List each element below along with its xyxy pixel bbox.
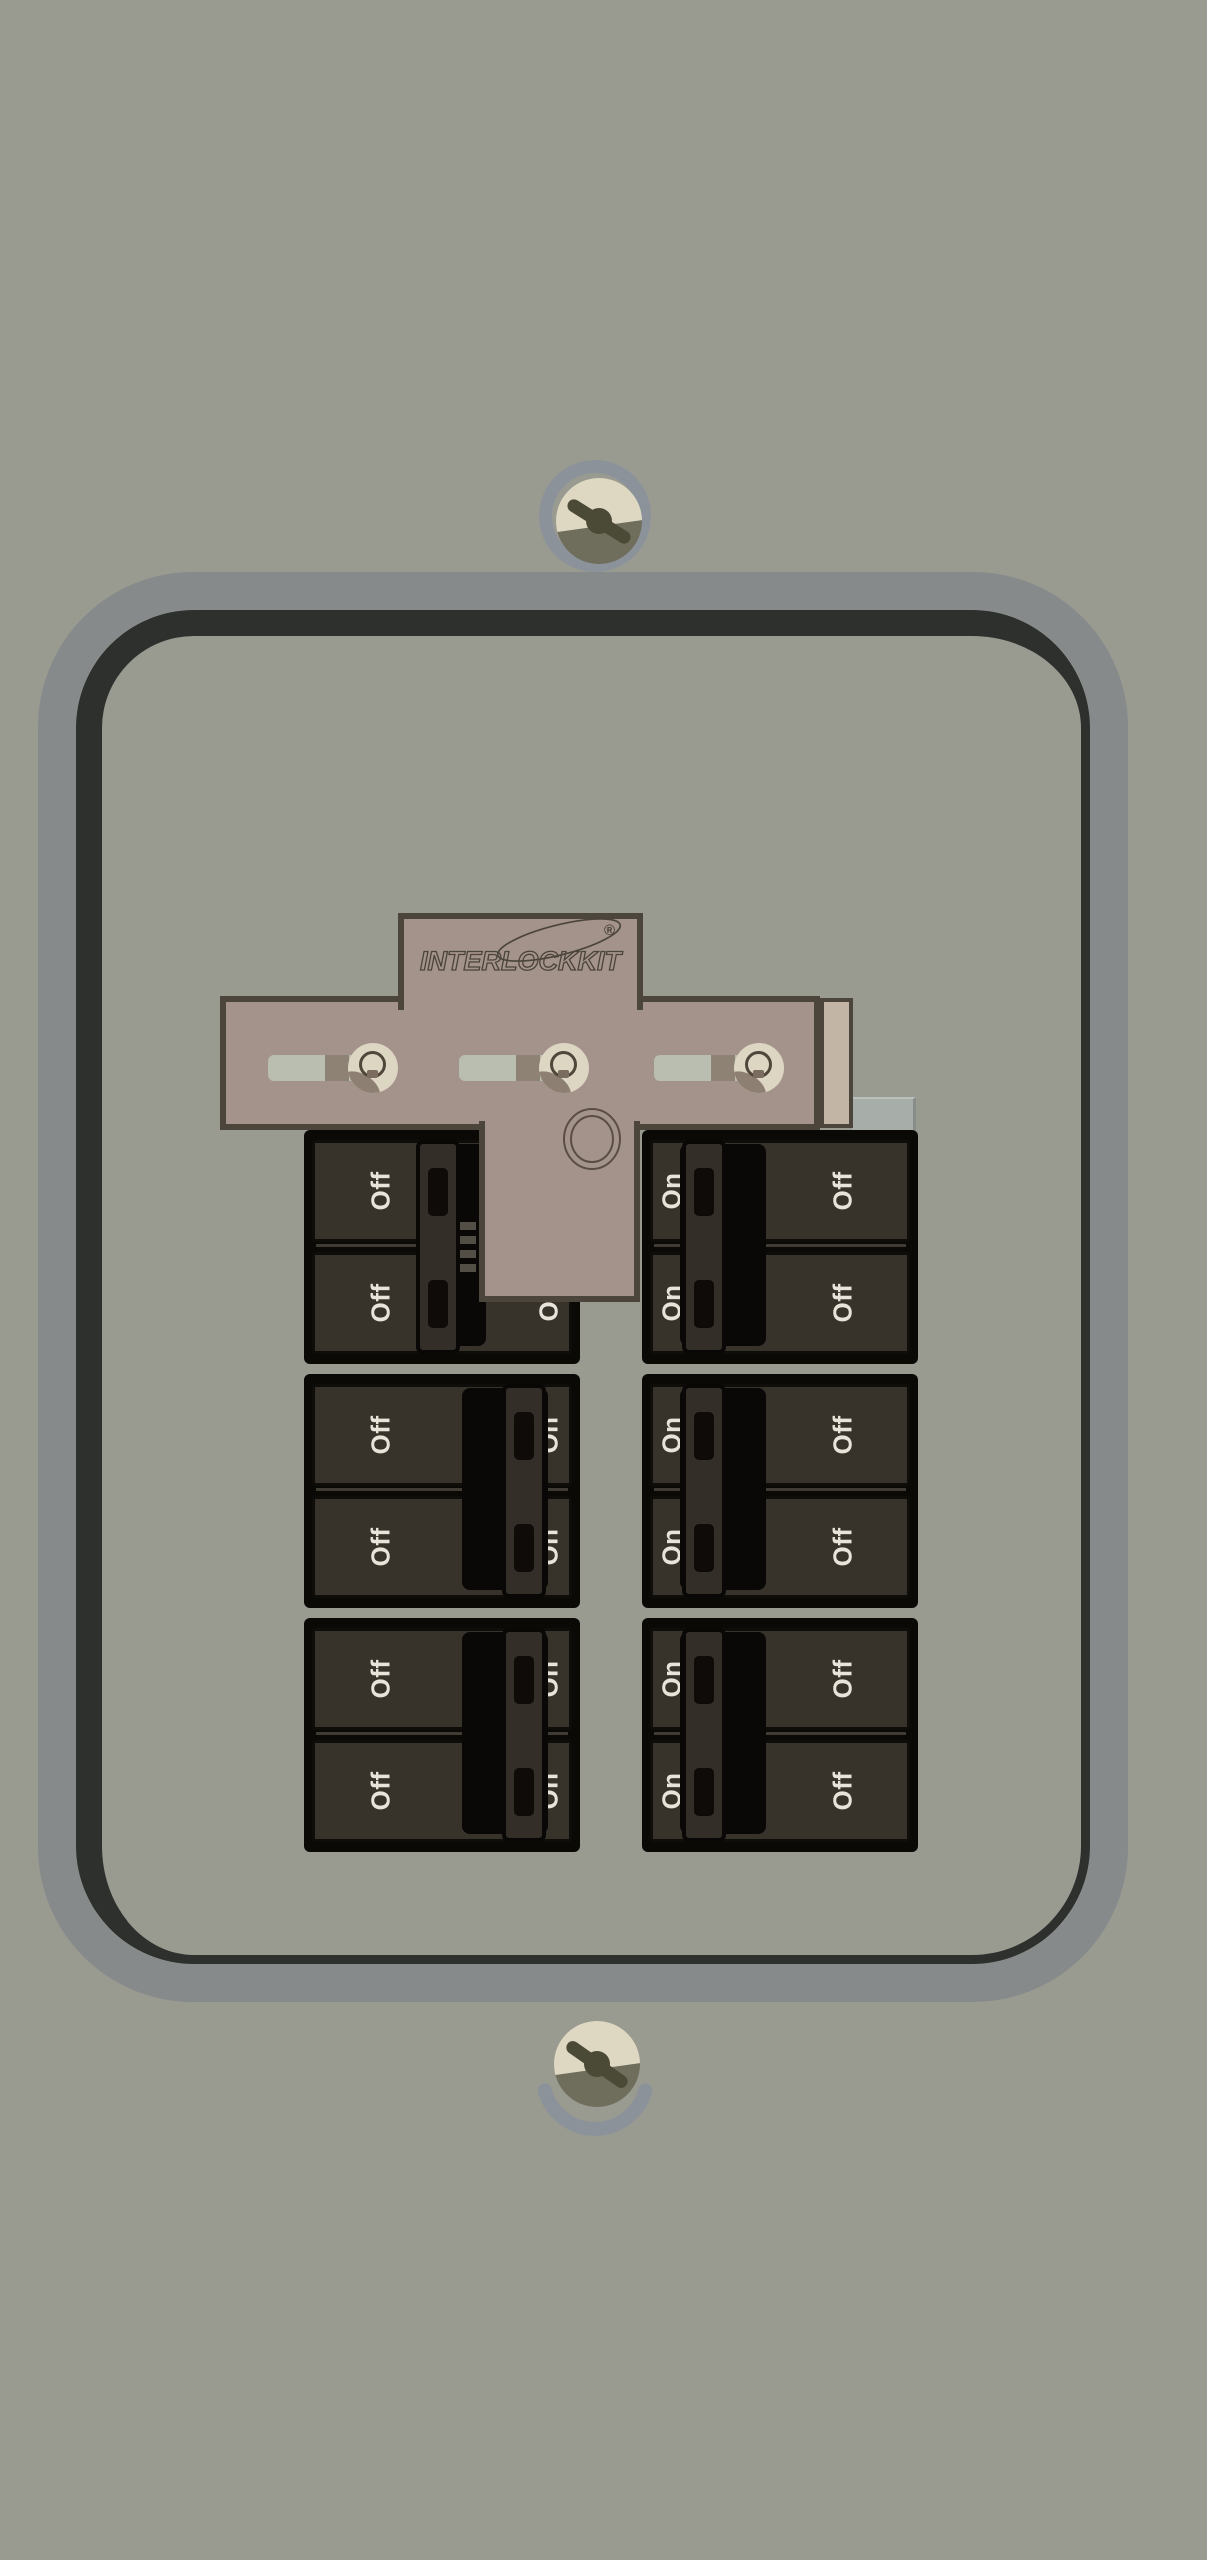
- breaker-off-label: Off: [366, 1527, 397, 1566]
- breaker-off-label: Off: [828, 1283, 859, 1322]
- screw-hub-icon: [584, 2051, 610, 2077]
- knob-notch: [558, 1070, 569, 1078]
- breaker-pair-left-2: Off On Off On: [304, 1374, 580, 1608]
- breaker-off-label: Off: [366, 1659, 397, 1698]
- breaker-handle-tie[interactable]: [502, 1628, 546, 1842]
- plate-oval-hole-icon: [554, 1100, 632, 1180]
- slider-shadow: [516, 1055, 540, 1081]
- breaker-off-label: Off: [828, 1415, 859, 1454]
- vent-stripe: [458, 1222, 476, 1230]
- breaker-off-label: Off: [366, 1171, 397, 1210]
- handle-grip: [514, 1524, 534, 1572]
- breaker-panel: Off On Off On Off On Off On Off On: [0, 0, 1207, 2560]
- vent-stripe: [458, 1236, 476, 1244]
- breaker-off-label: Off: [366, 1283, 397, 1322]
- breaker-handle-tie[interactable]: [682, 1628, 726, 1842]
- screw-head-icon: [556, 478, 642, 564]
- breaker-off-label: Off: [828, 1771, 859, 1810]
- top-screw[interactable]: [539, 460, 655, 576]
- interlock-plate-side-strip: [820, 998, 853, 1128]
- slider-shadow: [325, 1055, 349, 1081]
- handle-grip: [694, 1280, 714, 1328]
- breaker-off-label: Off: [366, 1771, 397, 1810]
- knob-notch: [753, 1070, 764, 1078]
- screw-head-icon: [554, 2021, 640, 2107]
- handle-grip: [694, 1524, 714, 1572]
- breaker-pair-right-3: On Off On Off: [642, 1618, 918, 1852]
- handle-grip: [694, 1768, 714, 1816]
- breaker-handle-tie[interactable]: [502, 1384, 546, 1598]
- breaker-off-label: Off: [828, 1171, 859, 1210]
- handle-grip: [428, 1280, 448, 1328]
- handle-grip: [428, 1168, 448, 1216]
- handle-grip: [514, 1412, 534, 1460]
- breaker-pair-left-3: Off On Off On: [304, 1618, 580, 1852]
- registered-trademark: ®: [604, 922, 615, 939]
- logo-swoosh-icon: [455, 896, 665, 966]
- breaker-off-label: Off: [828, 1527, 859, 1566]
- vent-stripe: [458, 1264, 476, 1272]
- vent-stripe: [458, 1250, 476, 1258]
- handle-grip: [694, 1656, 714, 1704]
- knob-notch: [367, 1070, 378, 1078]
- handle-grip: [694, 1168, 714, 1216]
- breaker-handle-tie[interactable]: [682, 1384, 726, 1598]
- handle-grip: [694, 1412, 714, 1460]
- breaker-handle-tie[interactable]: [682, 1140, 726, 1354]
- interlock-slider-knob-1[interactable]: [348, 1043, 398, 1093]
- interlock-slider-knob-3[interactable]: [734, 1043, 784, 1093]
- slider-shadow: [711, 1055, 735, 1081]
- panel-cutout-edge: [852, 1097, 916, 1131]
- interlock-slider-knob-2[interactable]: [539, 1043, 589, 1093]
- breaker-handle-tie[interactable]: [416, 1140, 460, 1354]
- breaker-off-label: Off: [828, 1659, 859, 1698]
- handle-grip: [514, 1656, 534, 1704]
- screw-hub-icon: [586, 508, 612, 534]
- breaker-pair-right-1: On Off On Off: [642, 1130, 918, 1364]
- handle-grip: [514, 1768, 534, 1816]
- breaker-pair-right-2: On Off On Off: [642, 1374, 918, 1608]
- breaker-off-label: Off: [366, 1415, 397, 1454]
- bottom-screw[interactable]: [530, 2012, 660, 2142]
